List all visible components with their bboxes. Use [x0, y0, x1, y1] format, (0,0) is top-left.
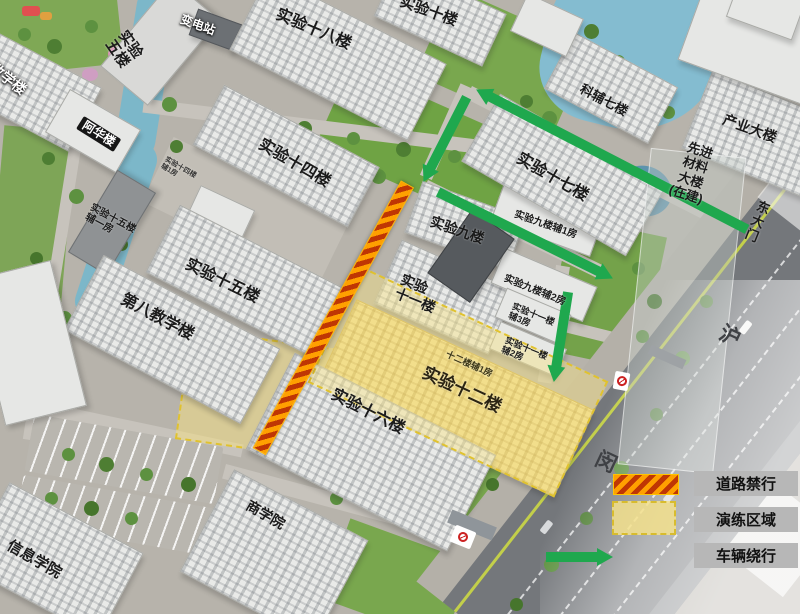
legend-swatch-drill-area: [612, 501, 676, 535]
legend-label-vehicle-detour: 车辆绕行: [694, 543, 798, 568]
vehicle: [539, 519, 553, 534]
campus-map: 实验 五楼 变电站 实验十八楼 实验十楼 数学楼 阿华楼 实验十四楼 实验十四楼…: [0, 0, 800, 614]
trees: [0, 0, 13, 13]
arrowhead: [545, 365, 565, 384]
no-entry-ring-icon: [456, 530, 469, 543]
flower-bed: [22, 6, 40, 16]
building-west: [0, 260, 87, 426]
legend-label-drill-area: 演练区域: [694, 507, 798, 532]
no-entry-sign-icon: [613, 371, 631, 391]
arrow-shaft: [546, 552, 598, 562]
legend-label-road-closed: 道路禁行: [694, 471, 798, 496]
no-entry-ring-icon: [616, 375, 628, 387]
flower-bed: [40, 12, 52, 20]
legend-swatch-road-closed: [613, 474, 679, 495]
arrowhead: [597, 548, 613, 566]
